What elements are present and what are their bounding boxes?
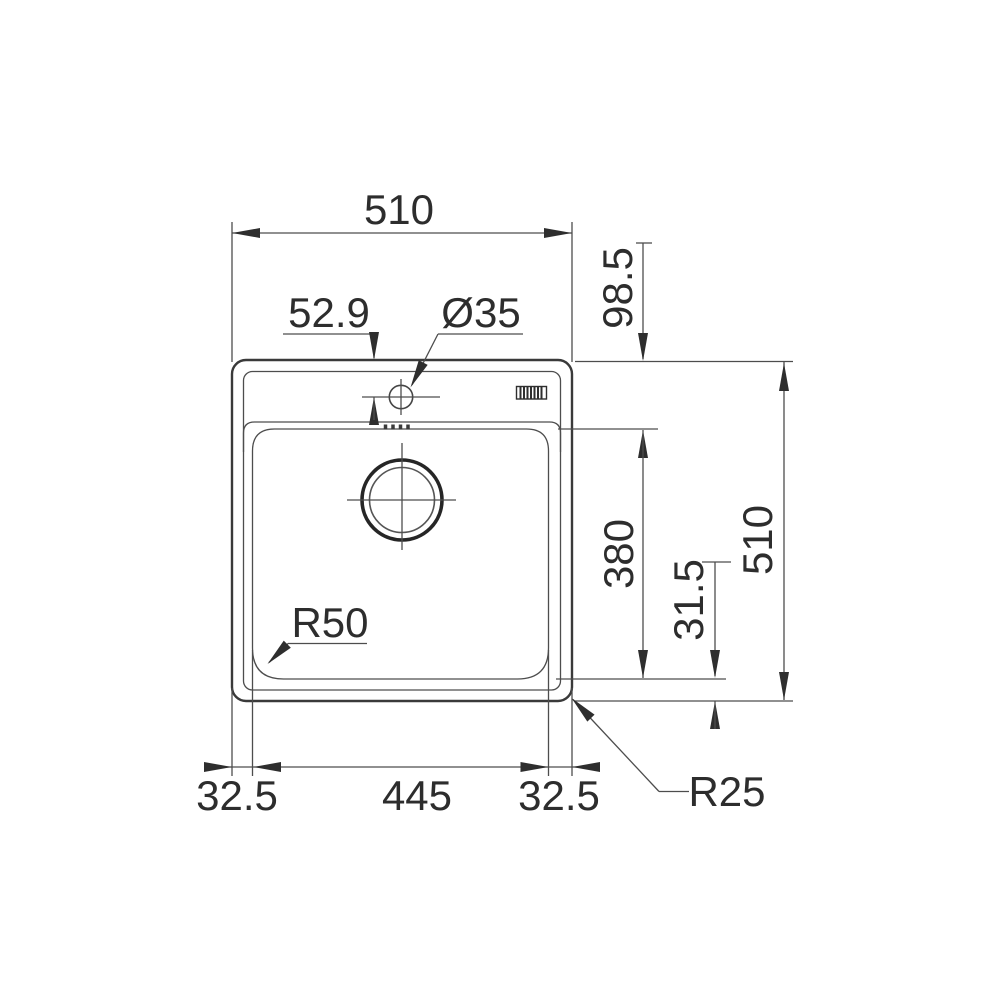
dim-label-corner-radius: R25 [688, 768, 765, 815]
technical-drawing-page: 510 52.9 Ø35 98.5 380 [0, 0, 1000, 1000]
arrowhead-left [232, 228, 260, 238]
arrowhead-down [710, 650, 720, 678]
arrowhead-down [779, 672, 789, 700]
arrowhead-down [369, 332, 379, 360]
dim-label-bottom-right-offset: 32.5 [518, 772, 600, 819]
dim-rim-depth: 98.5 [575, 243, 793, 362]
dim-hole-offset: 52.9 [283, 289, 379, 425]
dim-label-top-width: 510 [364, 186, 434, 233]
callout-hole-diameter: Ø35 [406, 289, 523, 390]
dim-label-overall-depth: 510 [734, 505, 781, 575]
arrowhead-right [204, 762, 232, 772]
dim-top-width: 510 [232, 186, 572, 362]
arrowhead-left [572, 762, 600, 772]
dim-label-bowl-bottom-offset: 31.5 [665, 559, 712, 641]
dim-label-bowl-width: 445 [382, 772, 452, 819]
drain [347, 443, 456, 550]
arrowhead [406, 360, 428, 389]
dim-bowl-bottom-offset: 31.5 [665, 559, 731, 729]
dim-label-hole-offset: 52.9 [288, 289, 370, 336]
dim-label-bowl-length: 380 [595, 519, 642, 589]
rim-badge [517, 387, 547, 400]
arrowhead-right [544, 228, 572, 238]
arrowhead-left [253, 762, 281, 772]
arrowhead-down [638, 333, 648, 361]
dim-bottom-chain: 32.5 445 32.5 [196, 650, 600, 819]
arrowhead-down [638, 650, 648, 678]
sink-dimension-drawing: 510 52.9 Ø35 98.5 380 [0, 0, 1000, 1000]
callout-bowl-radius: R50 [264, 599, 369, 668]
dim-label-hole-diameter: Ø35 [441, 289, 520, 336]
arrowhead-up [779, 363, 789, 391]
arrowhead [264, 641, 291, 668]
dim-label-bottom-left-offset: 32.5 [196, 772, 278, 819]
arrowhead-right [521, 762, 549, 772]
dim-label-rim-depth: 98.5 [594, 247, 641, 329]
dim-label-bowl-radius: R50 [291, 599, 368, 646]
